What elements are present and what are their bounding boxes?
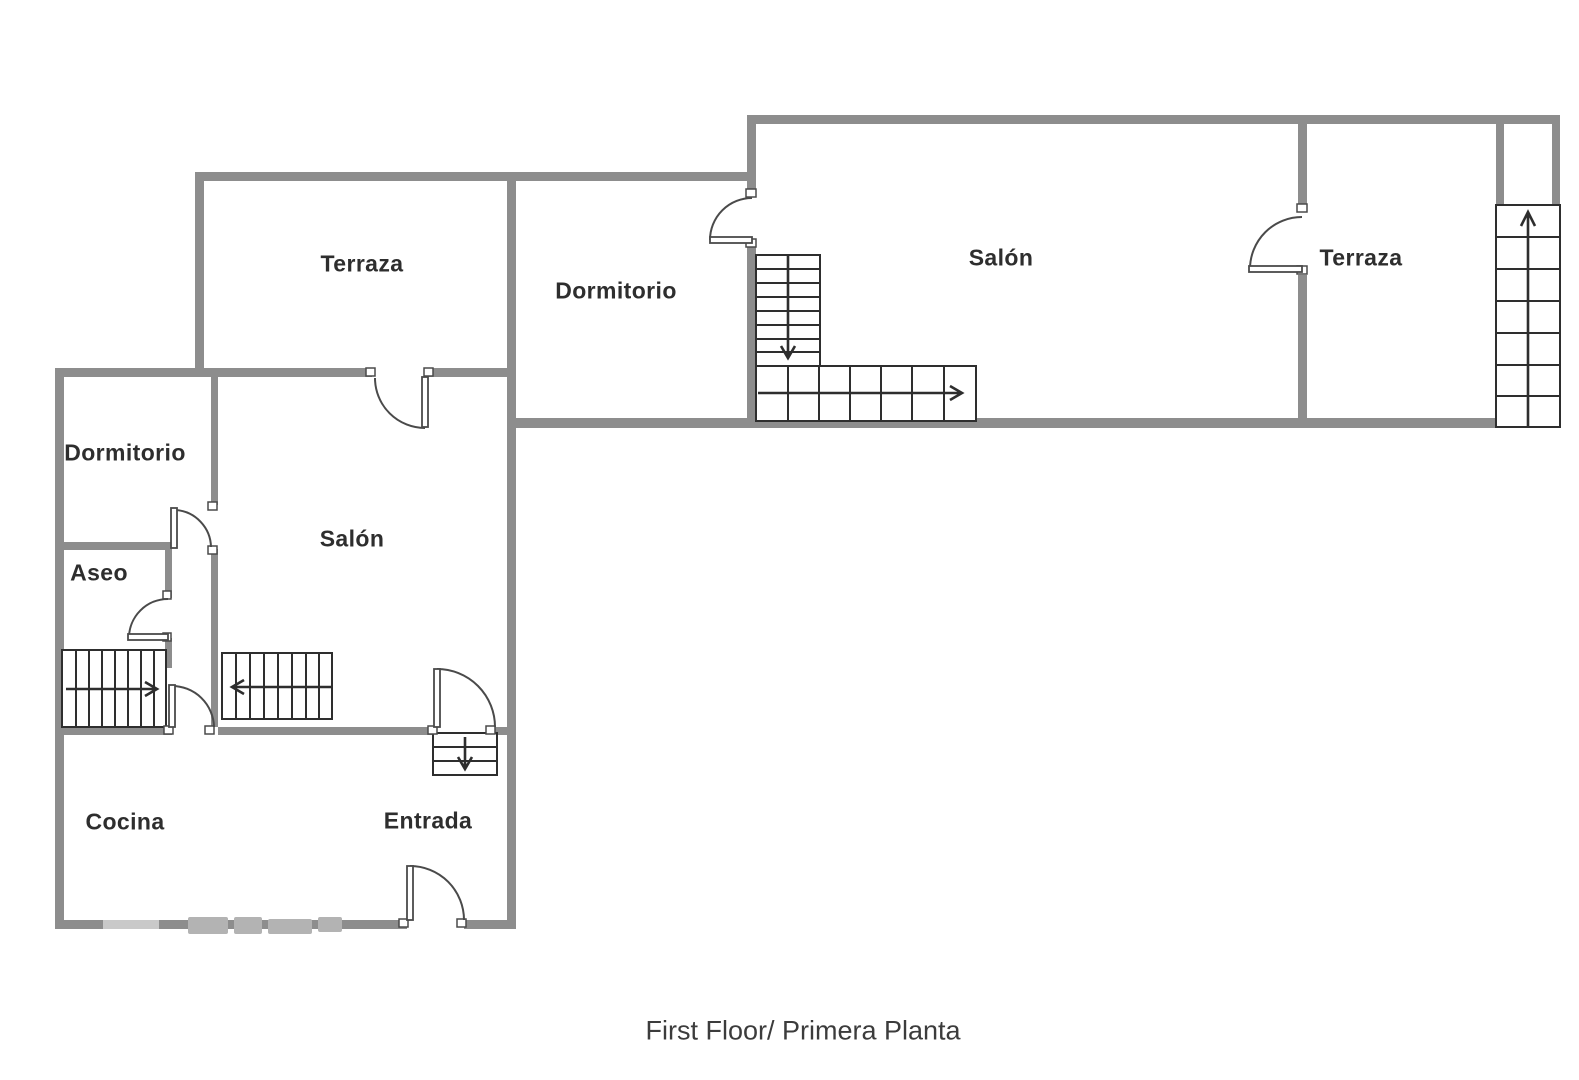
wall-right-outer	[1552, 124, 1560, 205]
wall-upper-top	[747, 115, 1560, 124]
door-arc	[710, 198, 752, 240]
room-label-entrada: Entrada	[384, 808, 472, 835]
door-salon-upper-to-terraza-right	[1249, 204, 1307, 274]
wall-aseo-top	[64, 542, 172, 550]
wall-terraza-tl-left	[195, 172, 204, 377]
door-leaf	[710, 237, 752, 243]
door-leaf	[128, 634, 168, 640]
wall-left-top-b	[428, 368, 516, 377]
door-terraza-tl-to-salon-left	[366, 368, 433, 428]
right-shaft-staircase	[1496, 205, 1560, 427]
watermark-partial-letters	[103, 917, 342, 934]
room-label-salon-upper: Salón	[969, 245, 1034, 272]
door-arc	[1250, 217, 1302, 269]
door-leaf	[434, 669, 440, 727]
door-arc	[437, 669, 495, 727]
door-salon-left-to-entrada	[428, 669, 495, 734]
upper-staircase-horizontal-flight	[756, 366, 976, 421]
watermark-fragment	[188, 917, 228, 934]
watermark-fragment	[318, 917, 342, 932]
watermark-fragment	[268, 919, 312, 934]
door-arc	[410, 866, 464, 920]
wall-corridor-bottom-b	[218, 727, 437, 735]
wall-upper-left-a	[747, 115, 756, 190]
wall-left-top-a	[55, 368, 372, 377]
floor-plan-page: Terraza Dormitorio Salón Terraza Dormito…	[0, 0, 1579, 1080]
upper-staircase-vertical-flight	[756, 255, 820, 366]
wall-strip-top	[195, 172, 756, 181]
door-leaf	[1249, 266, 1302, 272]
wall-shaft-left	[1496, 124, 1504, 205]
room-label-salon-left: Salón	[320, 526, 385, 553]
wall-divider-right-b	[1298, 275, 1307, 420]
room-label-terraza-right: Terraza	[1320, 245, 1403, 272]
walls	[55, 115, 1560, 929]
door-leaf	[422, 377, 428, 427]
door-arc	[172, 686, 214, 727]
wall-left-shared-right	[507, 172, 516, 929]
door-leaf	[171, 508, 177, 548]
door-dormitorio-middle-to-salon-upper	[710, 189, 756, 247]
room-label-dormitorio-middle: Dormitorio	[555, 278, 677, 305]
door-hall-to-cocina	[164, 685, 214, 734]
wall-upper-left-b	[747, 245, 756, 420]
entrada-steps	[433, 733, 497, 775]
door-leaf	[169, 685, 175, 727]
door-dormitorio-left-to-salon-left	[171, 502, 217, 554]
wall-left-outer	[55, 368, 64, 929]
watermark-fragment	[234, 917, 262, 934]
door-arc	[129, 599, 168, 638]
door-arc	[375, 378, 425, 428]
wall-divider-right-a	[1298, 124, 1307, 212]
left-hall-staircase	[62, 650, 166, 727]
left-salon-staircase	[222, 653, 332, 719]
wall-upper-bottom	[507, 418, 1497, 428]
room-label-dormitorio-left: Dormitorio	[64, 440, 186, 467]
room-label-aseo: Aseo	[70, 560, 128, 587]
wall-inner-vertical-a	[211, 377, 218, 505]
floor-caption: First Floor/ Primera Planta	[645, 1016, 960, 1047]
door-leaf	[407, 866, 413, 920]
door-aseo	[128, 591, 171, 641]
watermark-fragment	[103, 920, 159, 929]
wall-inner-vertical-b	[211, 549, 218, 727]
room-label-terraza-top-left: Terraza	[321, 251, 404, 278]
door-front-entrance	[399, 866, 466, 927]
room-label-cocina: Cocina	[85, 809, 164, 836]
floor-plan-drawing	[0, 0, 1579, 1080]
door-arc	[176, 510, 211, 547]
wall-corridor-bottom-a	[64, 727, 172, 735]
